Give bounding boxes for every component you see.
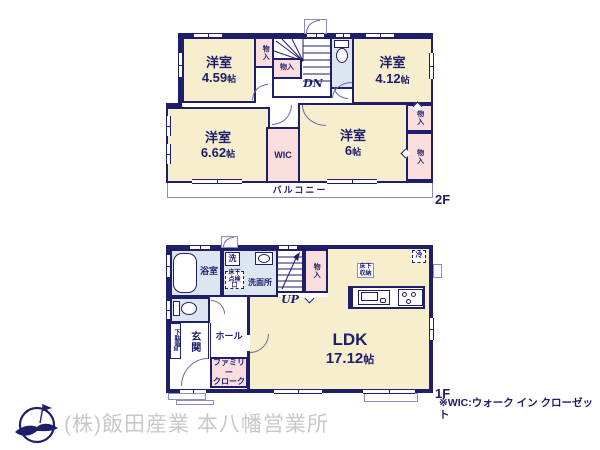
wall-hall-ldk-lower — [247, 351, 250, 389]
window-1f-top-stairs — [279, 245, 297, 250]
laundry-label: 洗 — [229, 254, 237, 263]
closet-label: 物入 — [280, 64, 294, 72]
closet-label: 物入 — [415, 149, 423, 165]
door-arc-toilet-1f — [211, 300, 225, 314]
door-arc-bedroom-662 — [272, 105, 292, 125]
company-name: (株)飯田産業 本八幡営業所 — [64, 408, 329, 438]
window-1f-bottom-ldk-b — [363, 389, 415, 394]
window-bay-kitchen — [433, 264, 442, 278]
window-2f-left-662-a — [166, 116, 171, 136]
staircase-1f — [276, 249, 304, 293]
ldk-size: 17.12 — [326, 350, 364, 367]
floor-2f-label: 2F — [435, 192, 450, 207]
window-2f-left-662-b — [166, 144, 171, 164]
room-name: 洋室 — [205, 130, 231, 145]
wall-hall-ldk-upper — [247, 297, 250, 335]
kitchen-faucet — [380, 298, 386, 303]
shoe-cabinet: 下駄箱M — [170, 323, 181, 359]
storage-line1: 床下 — [359, 264, 371, 271]
laundry-space: 洗 — [225, 252, 240, 266]
window-2f-top-412 — [366, 33, 394, 38]
room-size: 4.59 — [202, 70, 227, 85]
window-2f-top-toilet — [336, 33, 350, 38]
washroom-label: 洗面所 — [241, 278, 279, 287]
floorplan-image: 洋室 4.59帖 物入 物入 DN — [0, 0, 600, 450]
closet-label: 物入 — [312, 263, 320, 279]
window-2f-stair-landing — [307, 33, 324, 38]
stove-burner — [406, 299, 411, 304]
stair-arrow-head — [293, 252, 300, 261]
terrace-step — [364, 393, 418, 402]
family-closet: ファミリー クローク — [210, 357, 248, 388]
window-2f-left-459 — [178, 53, 183, 77]
stove-burner — [402, 292, 407, 297]
window-2f-top-459 — [194, 33, 222, 38]
room-size: 4.12 — [375, 71, 400, 86]
room-2f-bedroom-459: 洋室 4.59帖 — [182, 37, 256, 103]
room-name: 洋室 — [340, 128, 366, 143]
entrance-label: 玄関 — [188, 327, 200, 357]
room-size-unit: 帖 — [352, 147, 361, 157]
stairs-up-label: UP — [277, 294, 303, 307]
room-size-unit: 帖 — [227, 74, 236, 84]
room-size-unit: 帖 — [401, 75, 410, 85]
walk-in-closet-2f: WIC — [266, 127, 300, 183]
stair-treads-1f — [278, 251, 302, 291]
storage-line2: 収納 — [359, 271, 371, 278]
window-1f-right-ldk — [429, 318, 434, 340]
ldk-label-block: LDK 17.12帖 — [280, 330, 420, 368]
closet-2f-under-stairs: 物入 — [272, 58, 302, 79]
company-logo-bird-icon — [13, 400, 61, 446]
wash-basin-bowl — [258, 254, 270, 263]
window-2f-right-412 — [429, 53, 434, 79]
fridge-label: 冷 — [416, 252, 423, 260]
bathroom-label: 浴室 — [194, 266, 224, 277]
room-size-unit: 帖 — [226, 149, 235, 159]
kitchen-stove — [398, 289, 423, 306]
hatch-line1: 床下 — [228, 270, 240, 277]
hall-label: ホール — [210, 331, 248, 342]
room-name: 洋室 — [379, 55, 405, 70]
shoe-cabinet-label: 下駄箱M — [172, 329, 179, 353]
closet-1f: 物入 — [304, 249, 328, 293]
closet-2f-right-lower: 物入 — [406, 132, 433, 181]
room-name: 洋室 — [206, 55, 232, 70]
kitchen-counter-end — [348, 286, 353, 309]
room-2f-bedroom-412: 洋室 4.12帖 — [352, 37, 433, 104]
toilet-bowl-1f — [181, 302, 197, 315]
wic-note: ※WIC:ウォーク イン クローゼット — [439, 397, 599, 422]
family-closet-line1: ファミリー — [212, 358, 246, 377]
family-closet-line2: クローク — [213, 377, 245, 386]
entrance-porch — [168, 393, 206, 400]
closet-label: 物入 — [415, 110, 423, 126]
window-1f-left-toilet — [166, 301, 171, 319]
stove-burner — [411, 292, 416, 297]
door-arc-entrance — [181, 358, 208, 386]
balcony-label: バルコニー — [273, 185, 328, 196]
window-1f-top-bath — [190, 245, 210, 250]
closet-label: 物入 — [261, 45, 269, 61]
window-1f-left-bath — [166, 255, 171, 277]
underfloor-storage: 床下 収納 — [357, 263, 374, 278]
toilet-bowl-2f — [336, 48, 348, 63]
room-2f-bedroom-662: 洋室 6.62帖 — [166, 107, 270, 183]
fridge-space: 冷 — [412, 250, 426, 263]
wic-label: WIC — [274, 150, 292, 161]
toilet-tank-1f — [173, 301, 180, 316]
entrance-porch-step — [176, 400, 214, 405]
toilet-tank-2f — [334, 40, 349, 48]
ldk-size-unit: 帖 — [363, 354, 374, 366]
ldk-name: LDK — [280, 330, 420, 350]
kitchen-sink-basin — [361, 292, 378, 301]
balcony: バルコニー — [167, 183, 433, 198]
window-1f-bottom-ldk-a — [274, 389, 322, 394]
stairs-down-label: DN — [299, 78, 327, 91]
room-size: 6.62 — [201, 145, 226, 160]
